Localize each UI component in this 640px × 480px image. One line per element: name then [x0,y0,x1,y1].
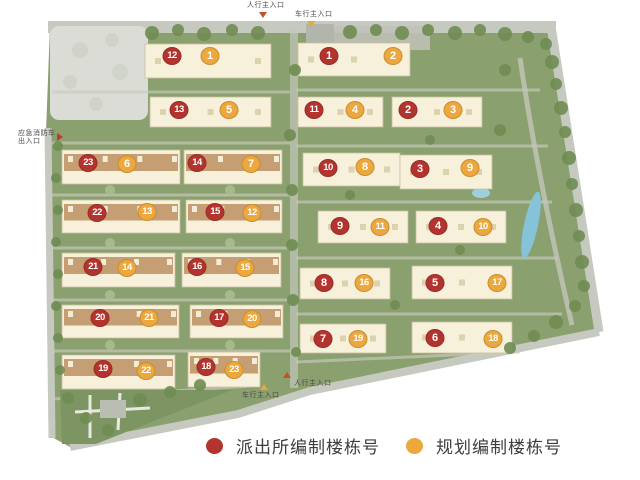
legend: 派出所编制楼栋号 规划编制楼栋号 [206,433,562,458]
entrance-arrow-icon-vehicle-bottom [260,384,268,390]
building-marker-plan-16: 16 [355,274,374,292]
entrance-label-vehicle-top: 车行主入口 [295,11,333,19]
building-marker-police-10: 10 [319,159,338,177]
parking-block [50,26,148,120]
police-legend-dot-icon [206,438,223,454]
building-marker-police-14: 14 [188,154,207,172]
building-marker-plan-15: 15 [236,259,255,277]
building-marker-police-20: 20 [91,309,110,327]
building-marker-plan-11: 11 [371,218,390,236]
plan-legend-dot-icon [406,438,423,454]
building-marker-plan-6: 6 [118,155,137,173]
building-marker-plan-7: 7 [242,155,261,173]
building-marker-plan-17: 17 [488,274,507,292]
building-marker-police-18: 18 [197,358,216,376]
building-marker-plan-22: 22 [137,362,156,380]
building-marker-police-12: 12 [163,47,182,65]
entrance-label-pedestrian-top: 人行主入口 [247,2,285,10]
building-marker-police-8: 8 [315,274,334,292]
site-plan-screenshot: 1211213511423236147108392213151291141021… [0,0,640,480]
building-marker-police-6: 6 [426,329,445,347]
building-marker-plan-20: 20 [243,310,262,328]
entrance-label-vehicle-bottom: 车行主入口 [242,392,280,400]
entrance-arrow-icon-emergency-left [57,133,63,141]
building-marker-plan-1: 1 [201,47,220,65]
building-marker-plan-21: 21 [140,309,159,327]
building-marker-plan-23: 23 [225,361,244,379]
building-marker-police-7: 7 [314,330,333,348]
entrance-arrow-icon-vehicle-top [307,21,315,27]
building-marker-police-15: 15 [206,203,225,221]
building-marker-plan-12: 12 [243,204,262,222]
building-marker-police-2: 2 [399,101,418,119]
building-marker-police-5: 5 [426,274,445,292]
building-marker-plan-13: 13 [138,203,157,221]
building-marker-police-16: 16 [188,258,207,276]
building-marker-police-13: 13 [170,101,189,119]
building-marker-plan-19: 19 [349,330,368,348]
building-marker-police-3: 3 [411,160,430,178]
building-marker-police-4: 4 [429,217,448,235]
building-marker-plan-9: 9 [461,159,480,177]
building-marker-plan-14: 14 [118,259,137,277]
building-marker-plan-2: 2 [384,47,403,65]
building-marker-police-19: 19 [94,360,113,378]
building-marker-police-22: 22 [88,204,107,222]
entrance-label-pedestrian-bottom: 人行主入口 [294,380,332,388]
building-marker-plan-3: 3 [444,101,463,119]
legend-item-police: 派出所编制楼栋号 [206,433,380,458]
building-marker-police-21: 21 [84,258,103,276]
legend-label-police: 派出所编制楼栋号 [236,433,380,458]
building-marker-plan-4: 4 [346,101,365,119]
building-marker-police-9: 9 [331,217,350,235]
building-marker-plan-5: 5 [220,101,239,119]
building-marker-police-23: 23 [79,154,98,172]
legend-label-plan: 规划编制楼栋号 [436,433,562,458]
building-marker-police-11: 11 [305,101,324,119]
entrance-label-emergency-left: 应急消防车出入口 [18,130,56,147]
building-marker-plan-18: 18 [484,330,503,348]
building-marker-plan-10: 10 [474,218,493,236]
entrance-arrow-icon-pedestrian-top [259,12,267,18]
building-marker-police-1: 1 [320,47,339,65]
entrance-arrow-icon-pedestrian-bottom [283,372,291,378]
building-marker-police-17: 17 [210,309,229,327]
site-plan-map [0,0,640,480]
building-marker-plan-8: 8 [356,158,375,176]
legend-item-plan: 规划编制楼栋号 [406,433,562,458]
